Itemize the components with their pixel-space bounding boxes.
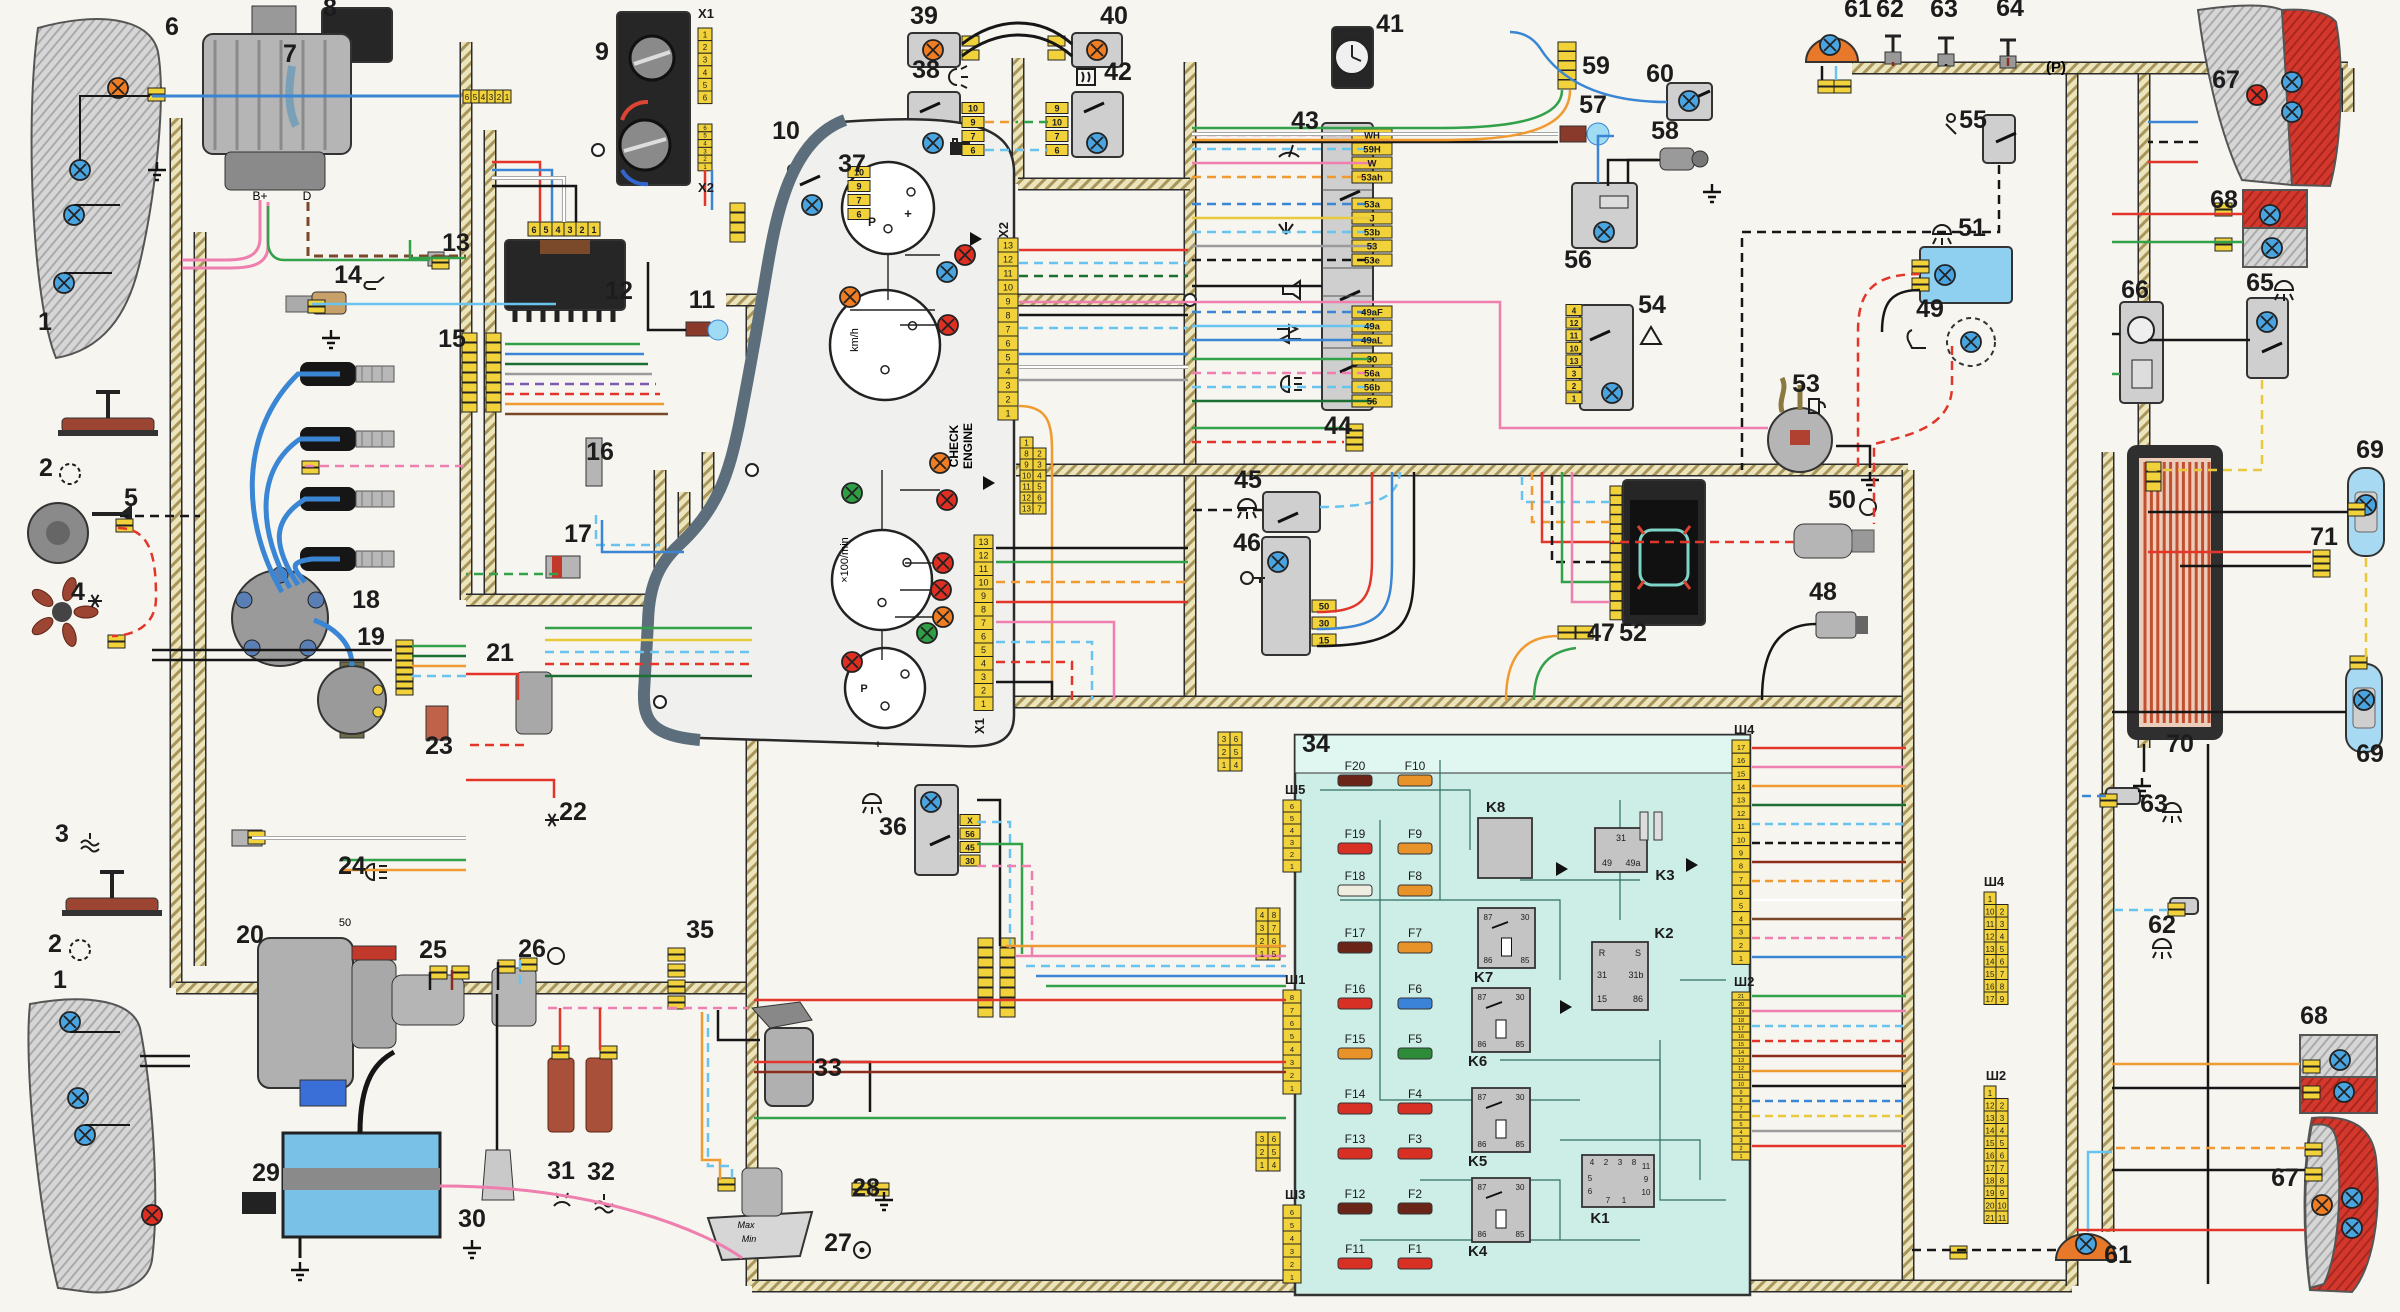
connector-stack-cell	[486, 353, 501, 362]
cluster-x1-pin: 8	[981, 605, 986, 615]
hazard54-tag-label: 1	[1572, 395, 1577, 404]
washer-reservoir-27	[708, 1212, 812, 1260]
strip-label-Ш4: Ш4	[1734, 722, 1755, 737]
bulb-red	[142, 1205, 162, 1225]
connector-stack-cell	[730, 213, 745, 222]
heater-x1-pin: 6	[703, 93, 708, 102]
fuse-label-F17: F17	[1345, 926, 1366, 940]
sh2-table-pin: 19	[1986, 1189, 1995, 1198]
distributor-port	[244, 640, 260, 656]
cluster-x1-pin: 5	[981, 645, 986, 655]
cluster-x2-pin: 8	[1005, 311, 1010, 321]
column43-terminal-label: 49aL	[1361, 336, 1383, 347]
strip-Ш2-pin: 5	[1739, 1122, 1742, 1128]
bulb-red	[2247, 85, 2267, 105]
switch10-tag-label: 6	[856, 210, 861, 220]
bulb-red	[955, 245, 975, 265]
K7-pin: 30	[1521, 913, 1530, 922]
misc-label: X1	[972, 718, 987, 734]
sh4-table-pin: 5	[2000, 945, 2005, 954]
alternator-base	[225, 152, 325, 190]
inline-connector	[600, 1046, 617, 1052]
strip52-cell	[1610, 486, 1622, 495]
K4-pin: 85	[1516, 1230, 1525, 1239]
fuse-label-F16: F16	[1345, 982, 1366, 996]
component-68-label: 68	[2300, 1002, 2328, 1030]
hazard54-tag-label: 10	[1570, 344, 1579, 353]
fuel-sender-float	[1790, 430, 1810, 445]
fuse-F4	[1398, 1103, 1432, 1114]
component-9-label: 9	[595, 38, 609, 66]
inline-connector	[396, 682, 413, 688]
inline-connector	[520, 965, 537, 971]
component-71-label: 71	[2310, 523, 2338, 551]
inline-connector	[2303, 1093, 2320, 1099]
sh4-table-pin: 11	[1986, 920, 1995, 929]
strip59-cell	[1558, 42, 1576, 51]
connector-stack-cell	[2146, 482, 2161, 491]
column43-terminal-label: 53b	[1364, 228, 1381, 239]
light-switch-45	[1263, 492, 1320, 532]
relay-name-K5: K5	[1468, 1153, 1487, 1170]
strip-label-Ш2: Ш2	[1734, 974, 1754, 989]
component-22-label: 22	[559, 798, 587, 826]
hazard54-tag-label: 12	[1570, 319, 1579, 328]
K1-pin: 5	[1588, 1174, 1593, 1183]
heater-x1-pin: 4	[703, 68, 708, 77]
lamp-connector	[1048, 50, 1065, 60]
misc-label: X2	[996, 222, 1011, 238]
strip52-cell	[1610, 601, 1622, 610]
component-58-label: 58	[1651, 117, 1679, 145]
strip-Ш4-pin: 2	[1739, 941, 1743, 950]
component-65-label: 65	[2246, 269, 2274, 297]
component-25-label: 25	[419, 936, 447, 964]
mate-table-1-pin: 7	[1272, 924, 1277, 933]
component-69-label: 69	[2356, 740, 2384, 768]
component-67-label: 67	[2271, 1164, 2299, 1192]
bulb-blue	[2260, 205, 2280, 225]
distributor-port	[236, 592, 252, 608]
sh2-table-pin: 21	[1986, 1214, 1995, 1223]
component-34-label: 34	[1302, 730, 1330, 758]
component-42-label: 42	[1104, 58, 1132, 86]
bulb-blue	[64, 205, 84, 225]
strip-Ш1-pin: 8	[1290, 993, 1294, 1002]
sh2-table-pin: 16	[1986, 1151, 1995, 1160]
cluster-x2-table-pin: 7	[1037, 505, 1042, 514]
hazard54-tag-label: 2	[1572, 382, 1577, 391]
connector-stack-cell	[730, 203, 745, 212]
fusebox-resistor	[1654, 812, 1662, 840]
inline-connector	[2305, 1143, 2322, 1149]
component-61-label: 61	[2104, 1241, 2132, 1269]
K3-pin: 31	[1616, 833, 1626, 843]
strip-Ш4-pin: 4	[1739, 915, 1743, 924]
strip52-cell	[1610, 553, 1622, 562]
component-48-label: 48	[1809, 578, 1837, 606]
bulb-blue	[1935, 265, 1955, 285]
strip-Ш5-pin: 4	[1290, 826, 1294, 835]
cluster-x2-pin: 4	[1005, 367, 1010, 377]
fuse-label-F19: F19	[1345, 827, 1366, 841]
sh2-table-pin: 1	[1988, 1089, 1993, 1098]
injector-32	[586, 1058, 612, 1132]
bulb-blue	[1820, 35, 1840, 55]
mate-table-1-pin: 6	[1272, 937, 1277, 946]
inline-connector	[1912, 267, 1929, 273]
inline-connector	[396, 689, 413, 695]
inline-connector	[1346, 445, 1363, 451]
component-70-label: 70	[2166, 730, 2194, 758]
component-6-label: 6	[165, 13, 179, 41]
strip-Ш1-pin: 2	[1290, 1071, 1294, 1080]
mate-table-0-pin: 2	[1222, 748, 1227, 757]
inline-connector	[552, 1053, 569, 1059]
column43-terminal-label: 53	[1367, 242, 1378, 253]
bulb-green	[917, 623, 937, 643]
connector-stack-cell	[1000, 978, 1015, 987]
bulb-blue	[802, 195, 822, 215]
lamp-65	[2247, 298, 2288, 378]
K7-pin: 87	[1484, 913, 1493, 922]
ignition46-tag-label: 30	[1319, 619, 1330, 630]
component-53-label: 53	[1792, 370, 1820, 398]
strip-Ш4-pin: 14	[1737, 783, 1745, 792]
component-1-label: 1	[53, 966, 67, 994]
strip-Ш4-pin: 12	[1737, 809, 1745, 818]
component-23-label: 23	[425, 732, 453, 760]
component-50-label: 50	[1828, 486, 1856, 514]
vaz-wiring-diagram: 1312111098765432113121110987654321182931…	[0, 0, 2400, 1312]
component-51-label: 51	[1958, 214, 1986, 242]
inline-connector	[2303, 1060, 2320, 1066]
bulb-green	[842, 483, 862, 503]
inline-connector	[1558, 633, 1575, 639]
sh4-table-pin: 1	[1988, 895, 1993, 904]
strip-Ш4-pin: 5	[1739, 901, 1743, 910]
connector-stack-cell	[978, 1008, 993, 1017]
sh2-table-pin: 14	[1986, 1126, 1995, 1135]
connector-stack-cell	[462, 403, 477, 412]
cluster-x1-pin: 11	[979, 564, 988, 574]
sensor-30	[482, 1150, 514, 1200]
column43-terminal-label: 53ah	[1361, 173, 1383, 184]
cluster-x2-table-pin: 4	[1037, 472, 1042, 481]
fuse-F19	[1338, 843, 1372, 854]
connector-stack-cell	[462, 393, 477, 402]
relay-name-K8: K8	[1486, 799, 1505, 816]
component-15-label: 15	[438, 325, 466, 353]
mate-table-1-pin: 5	[1272, 950, 1277, 959]
sh4-table-pin: 12	[1986, 932, 1995, 941]
bulb-red	[937, 490, 957, 510]
relay-name-K6: K6	[1468, 1053, 1487, 1070]
connector-stack-cell	[486, 363, 501, 372]
inline-connector	[2313, 564, 2330, 570]
module12-pin: 4	[555, 225, 560, 235]
starter-solenoid-cap	[352, 946, 396, 960]
component-55-label: 55	[1959, 106, 1987, 134]
component-29-label: 29	[252, 1159, 280, 1187]
sh2-table-pin: 10	[1998, 1201, 2007, 1210]
K2-pin: 31	[1597, 970, 1607, 980]
strip-Ш5-pin: 6	[1290, 802, 1294, 811]
cluster-x2-pin: 1	[1005, 409, 1010, 419]
K5-coil	[1496, 1120, 1506, 1138]
sh2-table-pin: 8	[2000, 1176, 2005, 1185]
column43-terminal-label: 30	[1367, 355, 1378, 366]
component-64-label: 64	[1996, 0, 2024, 22]
cluster-x1-pin: 6	[981, 632, 986, 642]
relay-56-resistor	[1600, 196, 1628, 208]
cluster-x2-pin: 3	[1005, 381, 1010, 391]
component-61-label: 61	[1844, 0, 1872, 23]
misc-label: P	[860, 683, 867, 695]
strip-Ш2-pin: 14	[1738, 1050, 1744, 1056]
K4-pin: 86	[1478, 1230, 1487, 1239]
cluster-x2-pin: 11	[1003, 269, 1012, 279]
heater-x1-pin: 5	[703, 81, 708, 90]
component-41-label: 41	[1376, 10, 1404, 38]
cluster-x2-pin: 10	[1003, 283, 1013, 293]
sh2-table-pin: 12	[1986, 1101, 1995, 1110]
strip-Ш1-pin: 4	[1290, 1045, 1294, 1054]
fuse-F1	[1398, 1258, 1432, 1269]
component-54-label: 54	[1638, 291, 1666, 319]
component-66-label: 66	[2121, 276, 2149, 304]
inline-connector	[668, 955, 685, 961]
fuse-label-F7: F7	[1408, 926, 1422, 940]
inline-connector	[2313, 557, 2330, 563]
cluster-x1-pin: 3	[981, 672, 986, 682]
K4-coil	[1496, 1210, 1506, 1228]
inline-connector	[396, 640, 413, 646]
sh2-table-pin: 7	[2000, 1164, 2005, 1173]
fusebox-resistor	[1640, 812, 1648, 840]
inline-connector	[1834, 80, 1851, 86]
sh2-table-pin: 18	[1986, 1176, 1995, 1185]
K2-pin: 31b	[1628, 970, 1643, 980]
connector-stack-cell	[978, 968, 993, 977]
fuse-label-F14: F14	[1345, 1087, 1366, 1101]
K2-pin: R	[1599, 948, 1606, 958]
inline-connector	[600, 1053, 617, 1059]
inline-connector	[2100, 801, 2117, 807]
mate-table-0-pin: 1	[1222, 761, 1227, 770]
strip-Ш1-pin: 6	[1290, 1019, 1294, 1028]
misc-label: +	[904, 206, 912, 221]
switch42-tag-label: 6	[1054, 146, 1059, 156]
component-2-label: 2	[48, 930, 62, 958]
sh2-table-pin: 11	[1998, 1214, 2007, 1223]
connector-stack-cell	[462, 363, 477, 372]
fuse-F10	[1398, 775, 1432, 786]
K2-pin: S	[1635, 948, 1641, 958]
strip-label-Ш5: Ш5	[1285, 782, 1305, 797]
sh2-table-pin: 5	[2000, 1139, 2005, 1148]
strip-Ш4-pin: 6	[1739, 888, 1743, 897]
strip-Ш2-pin: 8	[1739, 1098, 1742, 1104]
cluster-x1-pin: 4	[981, 659, 986, 669]
lighter-48	[1816, 612, 1856, 638]
sh4-table-pin: 15	[1986, 970, 1995, 979]
horn-2	[62, 418, 154, 432]
mate-table-2-pin: 1	[1260, 1161, 1265, 1170]
inline-connector	[668, 948, 685, 954]
bulb-blue	[2330, 1050, 2350, 1070]
horn-2-base	[58, 430, 158, 436]
connector-stack-cell	[978, 988, 993, 997]
switch42-tag-label: 9	[1054, 104, 1059, 114]
alternator-d-terminal: D	[303, 189, 312, 203]
misc-label: Ш2	[1986, 1068, 2006, 1083]
fuse-F8	[1398, 885, 1432, 896]
strip52-cell	[1610, 524, 1622, 533]
strip-Ш2-pin: 7	[1739, 1106, 1742, 1112]
fan-hub	[52, 602, 72, 622]
K7-pin: 86	[1484, 956, 1493, 965]
reservoir-min-label: Min	[742, 1234, 757, 1244]
K1-pin: 3	[1618, 1158, 1623, 1167]
strip-Ш1-pin: 3	[1290, 1058, 1294, 1067]
mate-table-1-pin: 8	[1272, 911, 1277, 920]
strip-Ш3-pin: 3	[1290, 1247, 1294, 1256]
cluster-x1-pin: 13	[978, 537, 988, 547]
mate-table-1-pin: 2	[1260, 937, 1265, 946]
cluster-x2-pin: 2	[1005, 395, 1010, 405]
component-27-label: 27	[824, 1229, 852, 1257]
fuse-F9	[1398, 843, 1432, 854]
strip-Ш1-pin: 5	[1290, 1032, 1294, 1041]
component-24-label: 24	[338, 852, 366, 880]
component-44-label: 44	[1324, 412, 1352, 440]
component-12-label: 12	[605, 277, 633, 305]
cluster-x2-pin: 7	[1005, 325, 1010, 335]
K7-coil	[1502, 938, 1512, 956]
K4-pin: 30	[1516, 1183, 1525, 1192]
relay-name-K1: K1	[1590, 1210, 1609, 1227]
sh2-table-pin: 2	[2000, 1101, 2005, 1110]
bulb-red	[938, 315, 958, 335]
switch38-tag-label: 9	[970, 118, 975, 128]
switch10-tag-label: 7	[856, 196, 861, 206]
inline-connector	[2350, 656, 2367, 662]
K1-pin: 6	[1588, 1187, 1593, 1196]
washer-pump	[742, 1168, 782, 1216]
connector-stack-cell	[978, 958, 993, 967]
tail-lamp-67-top-red	[2282, 10, 2341, 186]
bulb-11-socket	[686, 322, 710, 336]
misc-label: X1	[698, 6, 714, 21]
K6-pin: 87	[1478, 993, 1487, 1002]
starter-terminal-50: 50	[339, 917, 351, 929]
washer-motor-58	[1660, 148, 1694, 170]
strip52-cell	[1610, 592, 1622, 601]
connector-stack-cell	[486, 403, 501, 412]
bulb-blue	[1594, 222, 1614, 242]
inline-connector	[2350, 663, 2367, 669]
fuse-label-F20: F20	[1345, 759, 1366, 773]
component-47-label: 47	[1587, 619, 1615, 647]
K1-pin: 4	[1590, 1158, 1595, 1167]
strip-Ш3-pin: 6	[1290, 1208, 1294, 1217]
inline-connector	[1950, 1253, 1967, 1259]
inline-connector	[396, 675, 413, 681]
component-38-label: 38	[912, 56, 940, 84]
strip-Ш4-pin: 7	[1739, 875, 1743, 884]
inline-connector	[498, 967, 515, 973]
K5-pin: 87	[1478, 1093, 1487, 1102]
strip-Ш4-pin: 8	[1739, 862, 1743, 871]
K5-pin: 30	[1516, 1093, 1525, 1102]
fuse-F7	[1398, 942, 1432, 953]
inline-connector	[1912, 278, 1929, 284]
hazard54-tag-label: 3	[1572, 370, 1577, 379]
mate-table-1-pin: 4	[1260, 911, 1265, 920]
cluster-x2-pin: 9	[1005, 297, 1010, 307]
K1-pin: 10	[1642, 1188, 1651, 1197]
inline-connector	[2305, 1150, 2322, 1156]
module12-pin: 3	[567, 225, 572, 235]
inline-connector	[498, 960, 515, 966]
component-2-label: 2	[39, 454, 53, 482]
strip-Ш2-pin: 13	[1738, 1058, 1744, 1064]
component-62-label: 62	[2148, 911, 2176, 939]
strip-Ш4-pin: 13	[1737, 796, 1745, 805]
inline-connector	[430, 966, 447, 972]
strip-Ш2-pin: 21	[1738, 994, 1744, 1000]
bulb-blue	[70, 160, 90, 180]
mate-table-0-pin: 6	[1234, 735, 1239, 744]
mate-table-0-pin: 3	[1222, 735, 1227, 744]
column43-terminal-label: 53e	[1364, 256, 1380, 267]
component-52-label: 52	[1619, 619, 1647, 647]
K6-pin: 30	[1516, 993, 1525, 1002]
mate-table-1-pin: 3	[1260, 924, 1265, 933]
lighter-48-tip	[1856, 616, 1868, 634]
strip-Ш5-pin: 2	[1290, 850, 1294, 859]
inline-connector	[1818, 87, 1835, 93]
column43-terminal-label: W	[1368, 159, 1377, 170]
light36-tag-label: 45	[965, 843, 975, 853]
strip-Ш4-pin: 3	[1739, 928, 1743, 937]
sh4-table-pin: 2	[2000, 907, 2005, 916]
ignition-coil-19	[318, 666, 386, 734]
sh2-table-pin: 4	[2000, 1126, 2005, 1135]
misc-label: P	[868, 215, 876, 229]
column43-terminal-label: 53a	[1364, 200, 1381, 211]
bulb-blue	[923, 133, 943, 153]
inline-connector	[668, 971, 685, 977]
inline-connector	[1834, 87, 1851, 93]
connector-stack-cell	[2146, 472, 2161, 481]
switch38-tag-label: 7	[970, 132, 975, 142]
inline-connector	[432, 263, 449, 269]
inline-connector	[452, 973, 469, 979]
fuse-F17	[1338, 942, 1372, 953]
bulb-blue	[1268, 552, 1288, 572]
hazard54-tag-label: 4	[1572, 307, 1577, 316]
strip52-cell	[1610, 582, 1622, 591]
mate-table-2-pin: 6	[1272, 1135, 1277, 1144]
inline-connector	[2168, 903, 2185, 909]
inline-connector	[2305, 1168, 2322, 1174]
component-8-label: 8	[323, 0, 337, 22]
component-68-label: 68	[2210, 186, 2238, 214]
cluster-x2-table-pin: 11	[1022, 483, 1031, 492]
heater-x1-pin: 3	[703, 56, 708, 65]
